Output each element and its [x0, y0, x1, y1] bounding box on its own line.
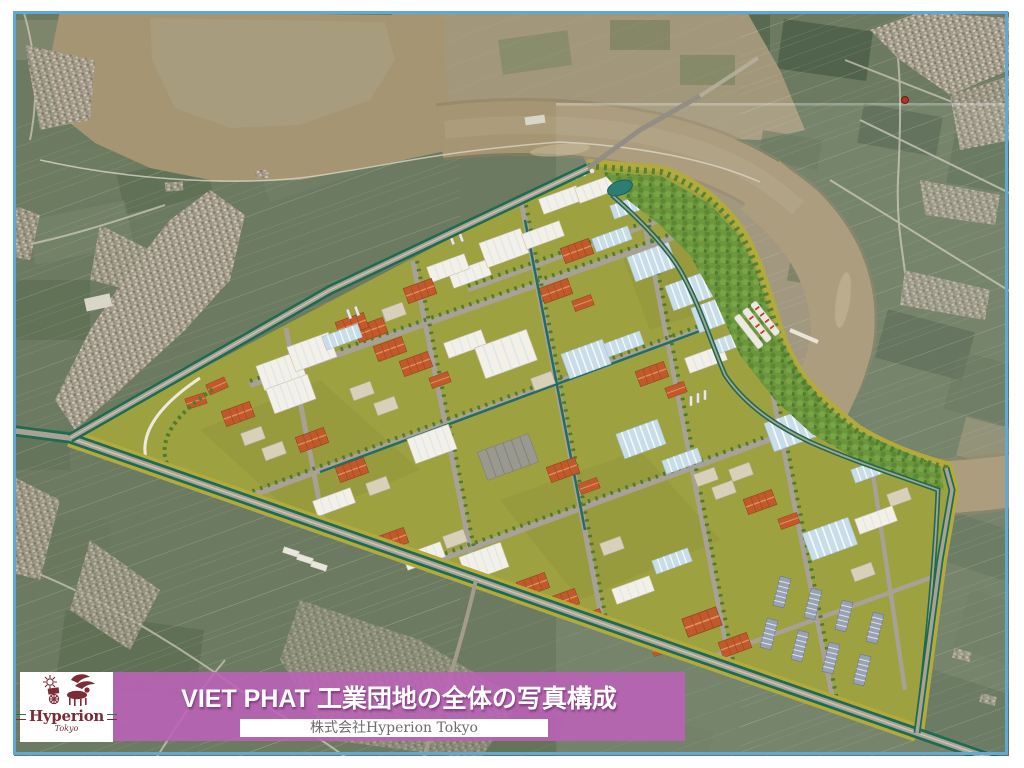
red-marker-icon: [902, 97, 909, 104]
hyperion-emblem-icon: [35, 672, 99, 708]
logo-rule-right: [107, 714, 117, 720]
title-banner: VIET PHAT 工業団地の全体の写真構成 株式会社Hyperion Toky…: [113, 672, 685, 741]
logo-rule-left: [16, 714, 26, 720]
logo-box: Hyperion Tokyo: [20, 672, 113, 742]
subtitle-bar: 株式会社Hyperion Tokyo: [240, 719, 548, 737]
logo-city: Tokyo: [55, 725, 79, 733]
aerial-photo: [0, 0, 1024, 768]
company-name: 株式会社Hyperion Tokyo: [240, 719, 548, 737]
logo-wordmark: Hyperion: [29, 709, 104, 724]
slide-title: VIET PHAT 工業団地の全体の写真構成: [113, 679, 685, 715]
